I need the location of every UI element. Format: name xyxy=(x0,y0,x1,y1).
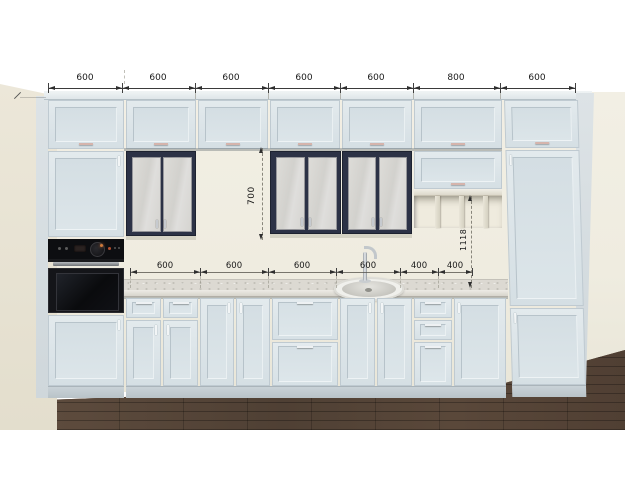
flap-cabinet-door[interactable] xyxy=(414,151,502,189)
dim-extension xyxy=(195,93,196,99)
base-unit-3-drawer-bottom[interactable] xyxy=(272,342,338,386)
dim-extension xyxy=(268,93,269,99)
dim-extension xyxy=(400,276,401,288)
dim-label-top-1: 600 xyxy=(65,73,105,83)
dim-arrow xyxy=(269,86,275,90)
glass-cabinet-c-handle[interactable] xyxy=(380,218,382,226)
dim-label-top-5: 600 xyxy=(356,73,396,83)
dim-label-1118: 1118 xyxy=(459,218,468,262)
dim-label-top-6: 800 xyxy=(436,73,476,83)
dim-arrow xyxy=(269,270,275,274)
dim-arrow xyxy=(334,86,340,90)
glass-cabinet-b-handle[interactable] xyxy=(309,218,311,226)
tall-cabinet-right-tall-door[interactable] xyxy=(505,150,583,306)
oven-icon-dot xyxy=(114,247,116,249)
dim-label-mid-1: 600 xyxy=(150,261,180,271)
dim-extension xyxy=(130,276,131,288)
dim-label-top-2: 600 xyxy=(138,73,178,83)
dimension-line-mid xyxy=(130,272,472,273)
dim-arrow xyxy=(194,270,200,274)
dim-arrow xyxy=(262,270,268,274)
dim-arrow xyxy=(394,270,400,274)
dim-extension xyxy=(124,70,125,84)
dim-extension xyxy=(500,93,501,99)
dim-arrow xyxy=(407,86,413,90)
dim-label-mid-3: 600 xyxy=(287,261,317,271)
dim-label-mid-2: 600 xyxy=(219,261,249,271)
dim-arrow xyxy=(414,86,420,90)
dim-extension xyxy=(340,93,341,99)
tall-cabinet-right-plinth xyxy=(512,385,586,397)
dim-tick xyxy=(472,268,473,276)
tall-cabinet-left-mid-door[interactable] xyxy=(48,151,124,237)
sink-drain xyxy=(365,288,372,292)
oven-door[interactable] xyxy=(48,268,124,313)
oven-icon-dot xyxy=(65,247,68,250)
oven-icon-dot xyxy=(118,247,120,249)
dim-label-mid-4: 600 xyxy=(353,261,383,271)
base-unit-2-door-left[interactable] xyxy=(200,298,234,386)
wall-cabinet-3-door[interactable] xyxy=(270,100,340,149)
glass-cabinet-shadow xyxy=(126,236,196,240)
dim-arrow xyxy=(341,86,347,90)
dimension-origin-line xyxy=(20,97,46,98)
kitchen-render-canvas: 600 600 600 600 600 800 600 600 600 600 … xyxy=(0,0,625,500)
dim-extension xyxy=(200,276,201,288)
dim-arrow xyxy=(501,86,507,90)
dim-arrow xyxy=(49,86,55,90)
glass-cabinet-a-handle[interactable] xyxy=(164,220,166,228)
glass-cabinet-c-right-pane xyxy=(379,157,407,230)
dim-arrow xyxy=(131,270,137,274)
sink-cabinet-door-right[interactable] xyxy=(377,298,412,386)
dim-arrow xyxy=(196,86,202,90)
tall-cabinet-left-bottom-door[interactable] xyxy=(48,315,124,386)
dim-arrow xyxy=(123,86,129,90)
dim-arrow xyxy=(494,86,500,90)
glass-cabinet-a-right-pane xyxy=(163,157,192,232)
shelf-divider xyxy=(435,196,440,228)
shelf-divider xyxy=(483,196,488,228)
base-unit-2-door-right[interactable] xyxy=(236,298,270,386)
dim-label-mid-6: 400 xyxy=(440,261,470,271)
glass-cabinet-a[interactable] xyxy=(126,151,196,236)
wall-cabinet-wide-door[interactable] xyxy=(414,100,502,149)
oven-control-panel[interactable] xyxy=(48,239,124,259)
base-plinth xyxy=(126,386,506,398)
dim-arrow xyxy=(259,234,263,240)
dim-arrow xyxy=(262,86,268,90)
glass-cabinet-b-right-pane xyxy=(308,157,337,230)
base-unit-6-door[interactable] xyxy=(454,298,506,386)
base-unit-1-drawer-left[interactable] xyxy=(126,298,161,318)
dim-extension xyxy=(413,93,414,99)
base-unit-1-door-left[interactable] xyxy=(126,320,161,386)
tall-cabinet-left-plinth xyxy=(48,386,124,398)
dim-arrow xyxy=(468,282,472,288)
glass-cabinet-c[interactable] xyxy=(342,151,412,234)
dim-label-700: 700 xyxy=(247,180,257,212)
oven-door-window xyxy=(56,273,119,311)
open-shelf-niche[interactable] xyxy=(414,196,502,228)
dim-label-mid-5: 400 xyxy=(404,261,434,271)
dim-arrow xyxy=(337,270,343,274)
tall-cabinet-right-top-door[interactable] xyxy=(504,100,579,148)
base-unit-3-drawer-top[interactable] xyxy=(272,298,338,340)
glass-cabinet-a-handle[interactable] xyxy=(156,220,158,228)
wall-cabinet-2-door[interactable] xyxy=(198,100,268,149)
dim-label-top-3: 600 xyxy=(211,73,251,83)
dim-extension xyxy=(268,276,269,288)
base-unit-1-door-right[interactable] xyxy=(163,320,198,386)
dim-arrow xyxy=(569,86,575,90)
tall-cabinet-left-side-panel xyxy=(36,96,48,398)
countertop-edge xyxy=(124,290,508,297)
glass-cabinet-c-handle[interactable] xyxy=(372,218,374,226)
wall-cabinet-1-door[interactable] xyxy=(126,100,196,149)
dim-line-700 xyxy=(262,148,263,240)
dim-arrow xyxy=(116,86,122,90)
oven-display xyxy=(74,245,86,252)
dim-label-top-7: 600 xyxy=(517,73,557,83)
oven-indicator-light xyxy=(100,244,103,247)
faucet-spout-tip xyxy=(374,255,377,259)
oven-indicator-light xyxy=(108,247,111,250)
base-unit-5-drawer-3[interactable] xyxy=(414,342,452,386)
dim-label-top-4: 600 xyxy=(284,73,324,83)
glass-cabinet-b[interactable] xyxy=(270,151,341,234)
dim-arrow xyxy=(189,86,195,90)
sink-cabinet-door-left[interactable] xyxy=(340,298,375,386)
dim-arrow xyxy=(468,195,472,201)
dim-arrow xyxy=(330,270,336,274)
open-shelf-board xyxy=(414,189,502,196)
oven-icon-dot xyxy=(58,247,61,250)
dim-arrow xyxy=(201,270,207,274)
dim-arrow xyxy=(259,147,263,153)
base-unit-1-drawer-right[interactable] xyxy=(163,298,198,318)
tall-cabinet-right-bottom-door[interactable] xyxy=(510,308,586,385)
dim-line-1118 xyxy=(471,196,472,288)
glass-cabinet-shadow xyxy=(270,234,412,238)
base-unit-5-drawer-1[interactable] xyxy=(414,298,452,318)
dim-extension xyxy=(438,276,439,288)
oven-handle[interactable] xyxy=(53,262,119,266)
base-unit-5-drawer-2[interactable] xyxy=(414,320,452,340)
tall-cabinet-right[interactable] xyxy=(504,99,586,397)
tall-cabinet-left-top-door[interactable] xyxy=(48,100,124,149)
dim-extension xyxy=(336,276,337,288)
wall-cabinet-4-door[interactable] xyxy=(342,100,412,149)
glass-cabinet-b-handle[interactable] xyxy=(301,218,303,226)
dim-tick xyxy=(575,83,576,93)
